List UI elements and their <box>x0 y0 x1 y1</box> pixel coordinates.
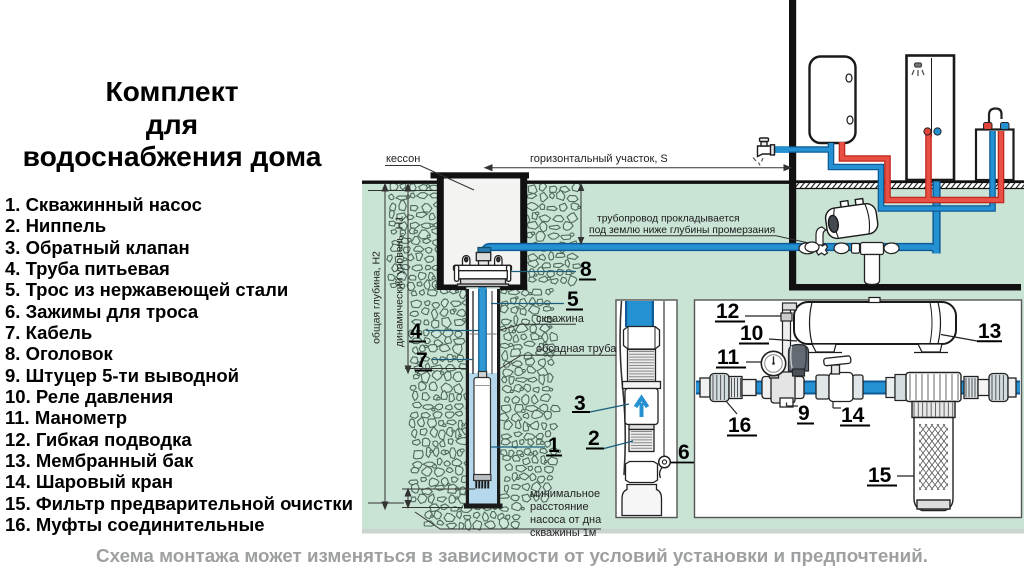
svg-text:4: 4 <box>410 320 422 343</box>
svg-text:под землю ниже глубины про: под землю ниже глубины промерзания <box>589 224 775 236</box>
svg-text:12: 12 <box>716 300 739 323</box>
svg-text:7: 7 <box>416 349 428 372</box>
svg-text:кессон: кессон <box>386 153 420 165</box>
svg-text:11: 11 <box>717 346 740 369</box>
svg-text:10: 10 <box>740 322 763 345</box>
svg-text:динамический уровень, Н1: динамический уровень, Н1 <box>394 216 406 347</box>
svg-text:обсадная труба: обсадная труба <box>536 343 617 355</box>
svg-text:9: 9 <box>798 402 810 425</box>
svg-text:13: 13 <box>978 320 1001 343</box>
svg-text:насоса от дна: насоса от дна <box>530 514 602 526</box>
svg-text:горизонтальный участок, S: горизонтальный участок, S <box>530 153 668 165</box>
svg-text:8: 8 <box>580 258 592 281</box>
svg-text:минимальное: минимальное <box>530 488 600 500</box>
svg-text:расстояние: расстояние <box>530 501 589 513</box>
svg-text:2: 2 <box>588 427 600 450</box>
svg-text:1: 1 <box>548 434 560 457</box>
svg-text:5: 5 <box>567 288 579 311</box>
svg-text:6: 6 <box>678 441 690 464</box>
svg-text:16: 16 <box>728 414 751 437</box>
svg-text:трубопровод прокладывается: трубопровод прокладывается <box>597 213 740 225</box>
svg-text:скважина: скважина <box>536 313 585 325</box>
svg-text:14: 14 <box>841 404 865 427</box>
svg-text:общая глубина, Н2: общая глубина, Н2 <box>371 251 383 344</box>
svg-text:скважины 1м: скважины 1м <box>530 527 596 539</box>
svg-text:15: 15 <box>868 464 892 487</box>
